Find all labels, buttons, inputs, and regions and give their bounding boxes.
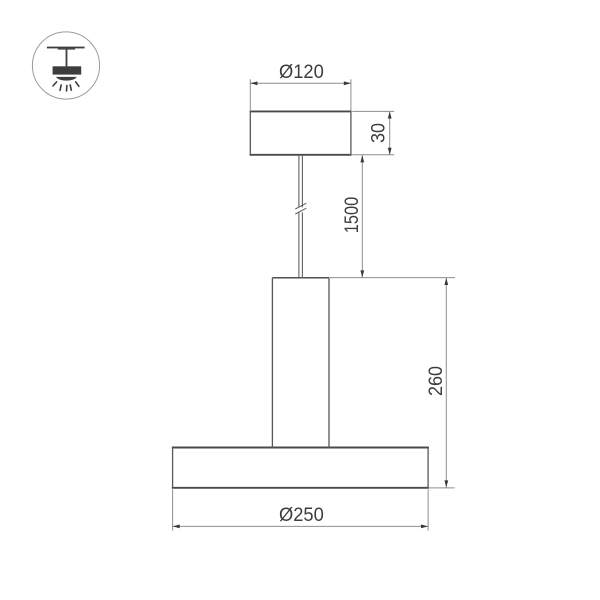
svg-text:260: 260 bbox=[425, 366, 447, 396]
svg-text:Ø120: Ø120 bbox=[279, 61, 324, 83]
svg-text:1500: 1500 bbox=[341, 197, 363, 234]
svg-text:30: 30 bbox=[367, 123, 389, 143]
svg-text:Ø250: Ø250 bbox=[279, 504, 324, 526]
